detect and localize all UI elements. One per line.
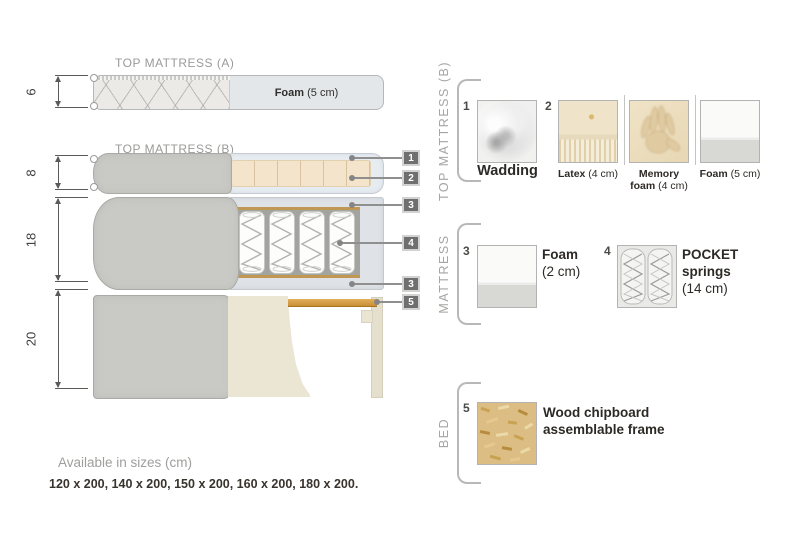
callout-3-top: 3 [402,197,420,213]
leader-dot [349,281,355,287]
legend-num-2: 2 [545,99,552,113]
legend-top-b-title: TOP MATTRESS (B) [437,61,451,201]
fabric-cover-mattress [93,197,239,290]
top-mattress-a-title: TOP MATTRESS (A) [115,56,234,70]
piping-button [90,183,98,191]
wood-chipboard-label: Wood chipboard assemblable frame [543,404,665,438]
piping-button [90,155,98,163]
leader-dot [349,202,355,208]
wadding-label: Wadding [470,165,545,177]
pocket-spring-graphic [299,211,325,274]
ruffle-edge [94,76,230,80]
foam-2cm-thumbnail [477,245,537,308]
mattress-construction-diagram: 6 8 18 20 TOP MATTRESS (A) Foam (5 cm) T… [0,0,800,533]
legend-num-5: 5 [463,401,470,415]
wadding-thumbnail [477,100,537,163]
pocket-spring-graphic [239,211,265,274]
fabric-cover-top-b [93,153,232,194]
dimension-value: 20 [24,332,39,346]
tick-line [55,281,88,282]
dimension-top-mattress-a: 6 [55,75,88,108]
leader-line [377,301,402,303]
callout-1: 1 [402,150,420,166]
leader-line [352,177,402,179]
foam-5cm-label: Foam (5 cm) [692,168,768,180]
arrow-line [58,77,59,106]
quilted-cover-texture [94,76,230,109]
foam-layer-label: Foam (5 cm) [234,76,379,109]
fabric-cover-bed [93,295,232,399]
legend-divider [624,95,625,165]
pocket-springs-label: POCKET springs (14 cm) [682,246,738,297]
arrow-line [58,291,59,387]
leader-dot [349,155,355,161]
dimension-value: 6 [24,88,39,95]
leader-line [352,283,402,285]
leader-line [352,157,402,159]
bed-fabric-drape-graphic [228,296,310,397]
arrow-line [58,157,59,188]
piping-button [90,74,98,82]
legend-num-4: 4 [604,244,611,258]
latex-label: Latex (4 cm) [550,168,626,180]
latex-blocks-graphic [231,160,371,187]
tick-line [55,189,88,190]
leader-line [340,242,402,244]
legend-num-1: 1 [463,99,470,113]
leader-dot [337,240,343,246]
dimension-top-mattress-b: 8 [55,155,88,190]
dimension-bed: 20 [55,289,88,389]
memory-foam-label: Memory foam (4 cm) [621,168,697,192]
callout-5: 5 [402,294,420,310]
bed-frame-corner-bracket [361,310,373,323]
callout-2: 2 [402,170,420,186]
foam-2cm-label: Foam (2 cm) [542,246,580,280]
dimension-mattress: 18 [55,197,88,282]
legend-divider [695,95,696,165]
callout-4: 4 [402,235,420,251]
tick-line [55,388,88,389]
memory-foam-thumbnail [629,100,689,163]
leader-dot [349,175,355,181]
latex-thumbnail [558,100,618,163]
wadding-layer-graphic [228,153,384,194]
callout-3-bottom: 3 [402,276,420,292]
foam-5cm-thumbnail [700,100,760,163]
available-sizes-title: Available in sizes (cm) [58,455,192,470]
legend-num-3: 3 [463,244,470,258]
legend-bed-title: BED [437,418,451,448]
wood-chipboard-thumbnail [477,402,537,465]
top-mattress-a-graphic: Foam (5 cm) [93,75,384,110]
available-sizes-list: 120 x 200, 140 x 200, 150 x 200, 160 x 2… [49,477,358,491]
piping-button [90,102,98,110]
legend-mattress-title: MATTRESS [437,234,451,313]
leader-line [352,204,402,206]
dimension-value: 18 [24,232,39,246]
tick-line [55,107,88,108]
pocket-spring-graphic [269,211,295,274]
leader-dot [374,299,380,305]
pocket-springs-thumbnail [617,245,677,308]
arrow-line [58,199,59,280]
wood-slat-graphic [288,299,377,307]
dimension-value: 8 [24,169,39,176]
